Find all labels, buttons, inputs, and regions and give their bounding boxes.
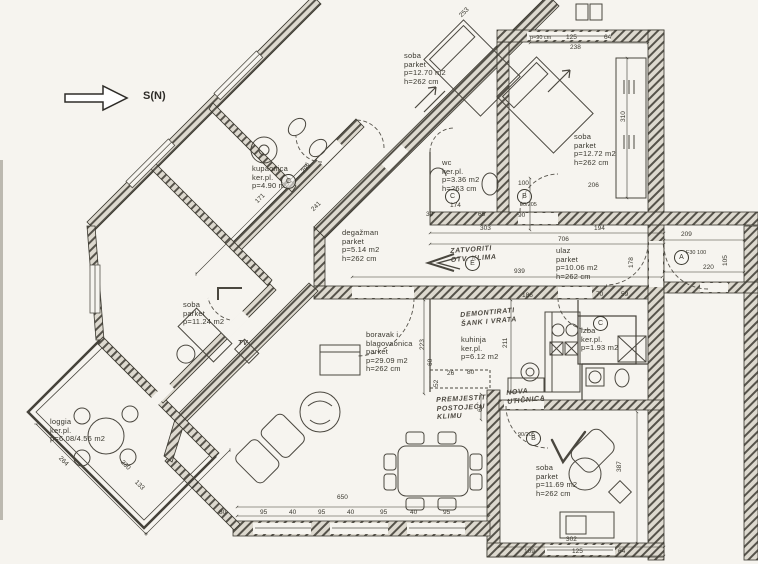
dimension-label: 70	[596, 291, 603, 298]
dimension-label: 95	[318, 509, 325, 516]
dimension-label: 939	[514, 268, 525, 275]
dimension-label: 109	[524, 548, 535, 555]
section-marker-e: E	[465, 256, 480, 271]
dimension-label: 238	[570, 44, 581, 51]
dimension-label: 95	[260, 509, 267, 516]
dimension-label: 220	[703, 264, 714, 271]
dimension-label: 65	[478, 211, 485, 218]
room-label-soba-top: sobaparketp=12.70 m2h=262 cm	[404, 52, 446, 86]
dimension-label: 211	[502, 338, 509, 348]
dimension-label: 174	[450, 202, 461, 209]
dimension-label: 40	[347, 509, 354, 516]
dimension-label: 310	[620, 111, 627, 122]
dimension-label: 650	[337, 494, 348, 501]
section-marker-c: C	[281, 174, 296, 189]
section-marker-c: C	[593, 316, 608, 331]
note-tv: TV	[238, 340, 248, 349]
room-label-degazman: degažmanparketp=5.14 m2h=262 cm	[342, 229, 379, 263]
dimension-label: 387	[616, 461, 623, 472]
dimension-label: 80	[467, 369, 474, 376]
dimension-label: 302	[566, 536, 577, 543]
dimension-label: 65	[477, 405, 484, 412]
room-label-soba-bottom: sobaparketp=11.69 m2h=262 cm	[536, 464, 577, 498]
room-label-soba-right: sobaparketp=12.72 m2h=262 cm	[574, 133, 616, 167]
scan-artifact	[0, 160, 3, 520]
dimension-label: 95	[443, 509, 450, 516]
dimension-label: 95	[380, 509, 387, 516]
dimension-label: 186	[522, 292, 533, 299]
dimension-label: 105	[722, 255, 729, 266]
dimension-label: 223	[419, 339, 426, 350]
dimension-label: 90	[518, 212, 525, 219]
dimension-label: 60	[427, 359, 434, 366]
dimension-label: 706	[558, 236, 569, 243]
dimension-label: 90/205	[518, 432, 535, 438]
dimension-label: p=90 cm	[530, 35, 551, 41]
dimension-lines	[36, 43, 744, 556]
dimension-label: 26	[447, 370, 454, 377]
room-label-kuhinja: kuhinjaker.pl.p=6.12 m2	[461, 336, 498, 362]
room-label-wc: wcker.pl.p=3.36 m2h=263 cm	[442, 159, 479, 193]
dimension-label: 125	[572, 548, 583, 555]
north-arrow-icon	[65, 86, 127, 110]
dimension-label: 52	[433, 380, 440, 387]
dimension-label: 64	[604, 34, 611, 41]
room-label-loggia: loggiaker.pl.p=6.08/4.56 m2	[50, 418, 105, 444]
dimension-label: 39	[426, 211, 433, 218]
dimension-label: 59	[621, 291, 628, 298]
dimension-label: 80	[219, 509, 226, 516]
dimension-label: 178	[628, 257, 635, 268]
room-label-ulaz: ulazparketp=10.06 m2h=262 cm	[556, 247, 598, 281]
dimension-label: 64	[618, 548, 625, 555]
dimension-label: 209	[681, 231, 692, 238]
dimension-label: 90/205	[520, 202, 537, 208]
compass-label: S(N)	[143, 90, 166, 102]
room-label-soba-left: sobaparketp=11.24 m2	[183, 301, 224, 327]
dimension-label: 303	[480, 225, 491, 232]
dimension-label: F30 100	[686, 250, 706, 256]
dimension-label: 194	[594, 225, 605, 232]
floor-plan-page: sobaparketp=12.70 m2h=262 cm sobaparketp…	[0, 0, 758, 564]
dimension-label: 125	[566, 34, 577, 41]
room-label-boravak: boravak iblagovaonicaparketp=29.09 m2h=2…	[366, 331, 413, 374]
dimension-label: 206	[588, 182, 599, 189]
dimension-label: 40	[289, 509, 296, 516]
floor-plan-drawing	[0, 0, 758, 564]
dimension-label: 40	[410, 509, 417, 516]
dimension-label: 100	[518, 180, 529, 187]
